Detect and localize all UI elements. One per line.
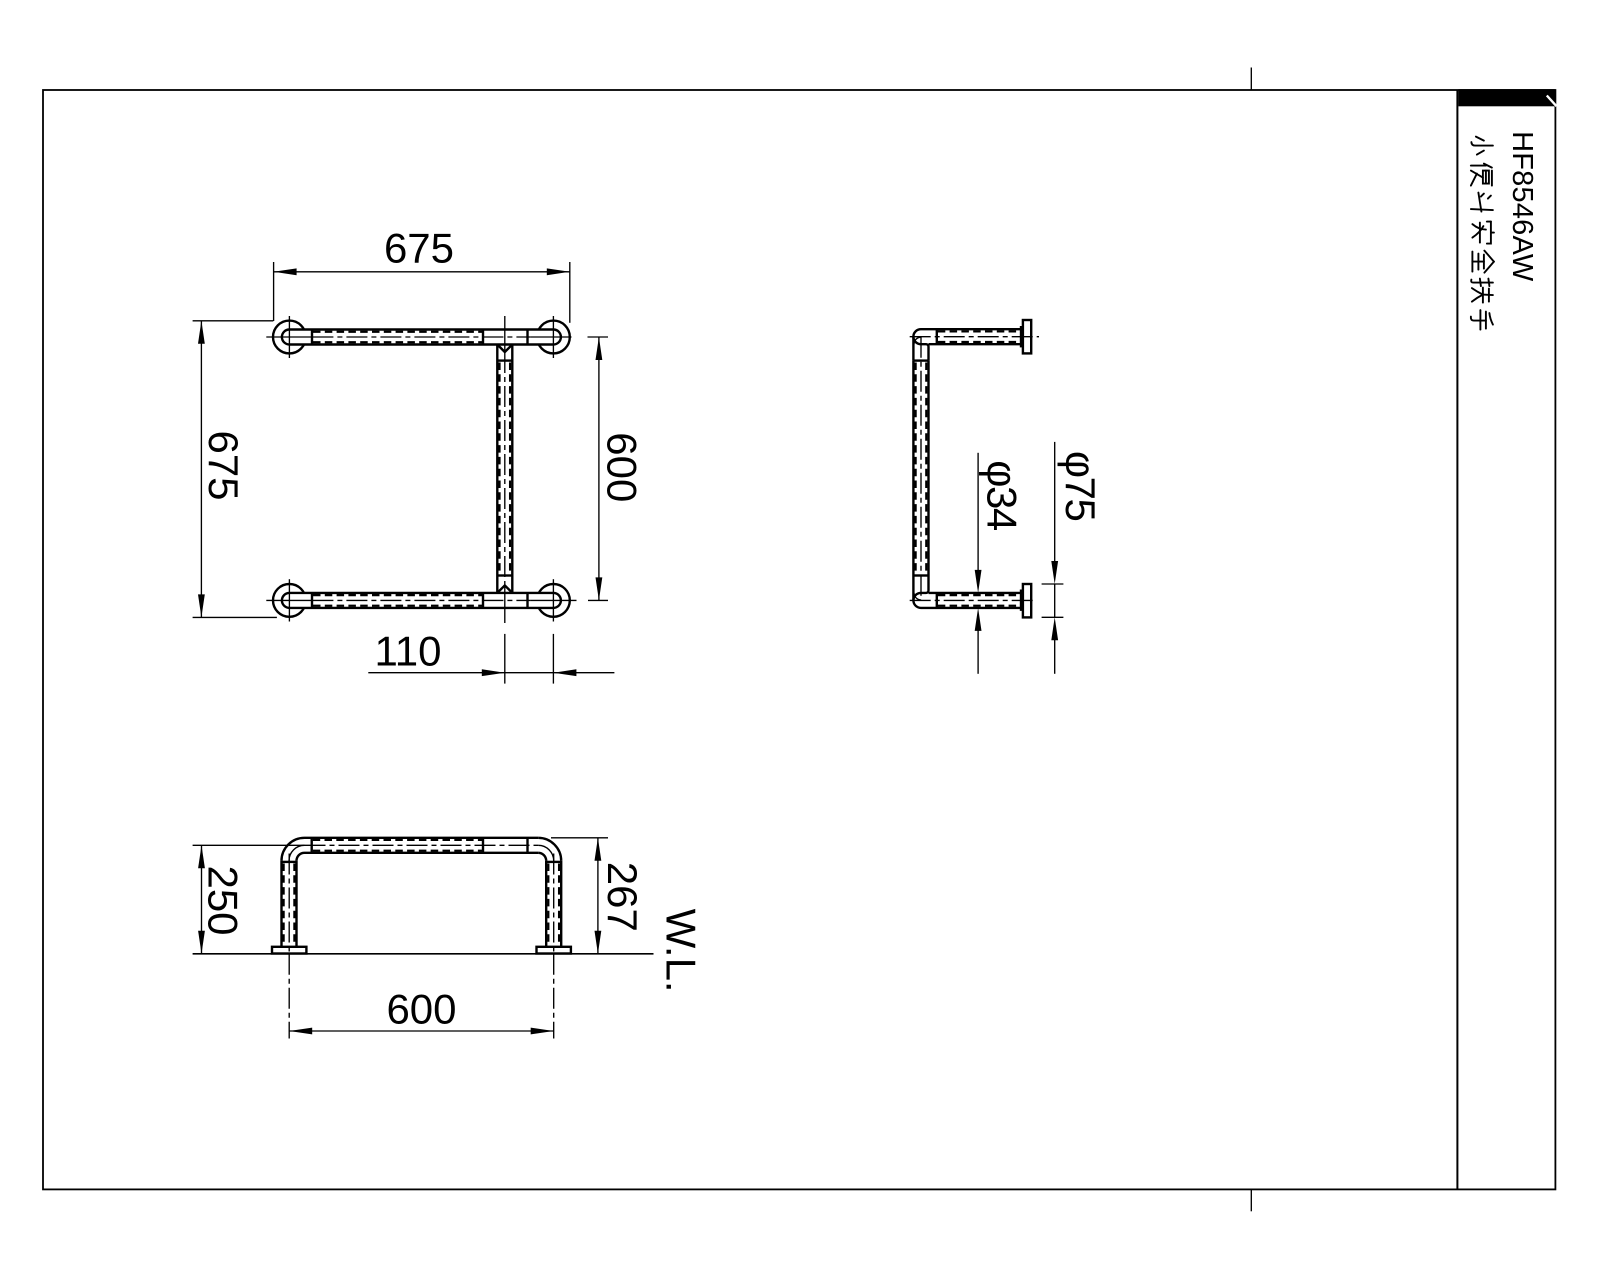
svg-text:250: 250: [200, 865, 247, 935]
svg-text:W.L.: W.L.: [658, 909, 705, 993]
svg-text:675: 675: [384, 225, 454, 272]
svg-text:600: 600: [386, 985, 456, 1032]
svg-text:675: 675: [200, 430, 247, 500]
svg-text:110: 110: [375, 627, 442, 674]
svg-text:600: 600: [599, 432, 646, 502]
svg-text:φ75: φ75: [1057, 451, 1104, 521]
svg-text:267: 267: [599, 862, 646, 932]
svg-text:φ34: φ34: [979, 460, 1026, 531]
svg-text:HF8546AW: HF8546AW: [1506, 131, 1538, 282]
